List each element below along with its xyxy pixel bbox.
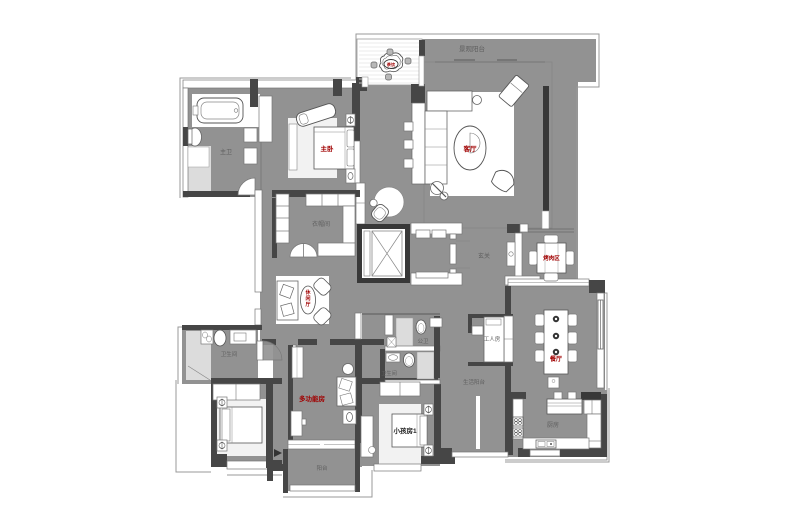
svg-text:工人房: 工人房 bbox=[484, 335, 501, 343]
svg-text:闲: 闲 bbox=[305, 295, 310, 302]
svg-text:茶饮: 茶饮 bbox=[386, 61, 396, 68]
svg-text:厅: 厅 bbox=[305, 301, 310, 308]
svg-text:景观阳台: 景观阳台 bbox=[459, 44, 485, 53]
svg-text:烤肉区: 烤肉区 bbox=[543, 254, 560, 262]
svg-text:生活阳台: 生活阳台 bbox=[463, 378, 486, 386]
svg-text:小孩房1: 小孩房1 bbox=[392, 426, 417, 435]
svg-text:卫生间: 卫生间 bbox=[381, 369, 397, 377]
svg-text:休: 休 bbox=[304, 289, 311, 296]
svg-text:客厅: 客厅 bbox=[463, 144, 478, 153]
svg-text:餐厅: 餐厅 bbox=[549, 355, 562, 363]
svg-text:主卫: 主卫 bbox=[220, 148, 232, 156]
svg-text:主卧: 主卧 bbox=[321, 144, 335, 153]
svg-text:衣帽间: 衣帽间 bbox=[312, 220, 330, 228]
svg-text:公卫: 公卫 bbox=[417, 338, 429, 345]
svg-text:阳台: 阳台 bbox=[316, 464, 328, 472]
svg-text:多功能房: 多功能房 bbox=[299, 394, 326, 403]
svg-text:玄关: 玄关 bbox=[478, 252, 490, 260]
svg-text:厨房: 厨房 bbox=[547, 421, 559, 429]
svg-text:卫生间: 卫生间 bbox=[221, 350, 238, 358]
